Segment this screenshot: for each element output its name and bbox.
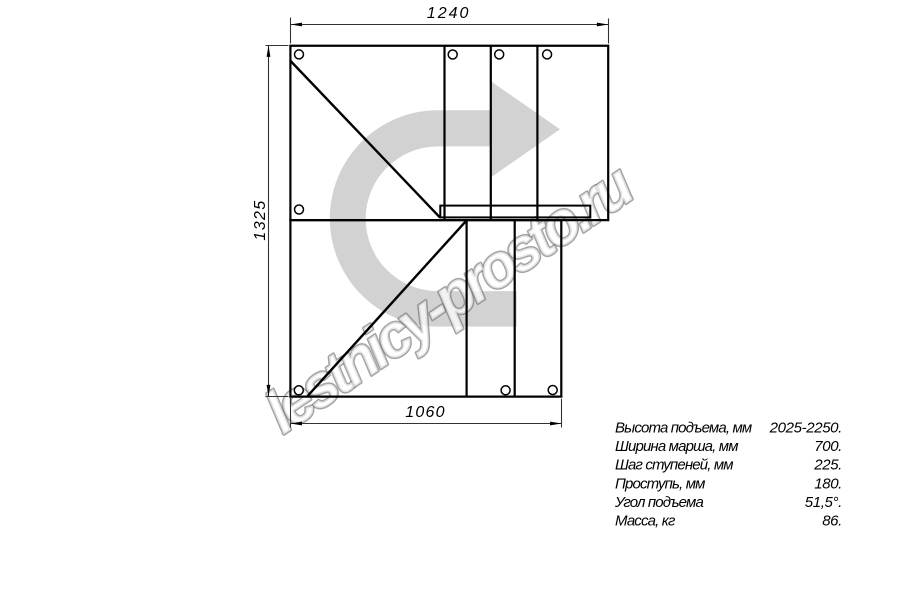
svg-text:Масса, кг: Масса, кг — [615, 513, 676, 530]
svg-text:Высота подъема, мм: Высота подъема, мм — [615, 420, 752, 437]
svg-text:Ширина марша, мм: Ширина марша, мм — [615, 438, 738, 455]
svg-text:1240: 1240 — [427, 5, 471, 22]
svg-text:86.: 86. — [822, 513, 842, 530]
svg-text:Угол подъема: Угол подъема — [614, 494, 703, 511]
svg-text:51,5°.: 51,5°. — [805, 494, 842, 511]
svg-text:Проступь, мм: Проступь, мм — [615, 475, 705, 492]
svg-text:700.: 700. — [814, 438, 842, 455]
svg-text:180.: 180. — [814, 475, 842, 492]
svg-text:1060: 1060 — [405, 404, 445, 421]
svg-text:1325: 1325 — [252, 199, 269, 240]
svg-text:Шаг ступеней, мм: Шаг ступеней, мм — [615, 457, 733, 474]
svg-text:225.: 225. — [813, 457, 842, 474]
svg-text:lestnicy-prosto.ru: lestnicy-prosto.ru — [253, 151, 645, 446]
svg-text:2025-2250.: 2025-2250. — [769, 420, 842, 437]
